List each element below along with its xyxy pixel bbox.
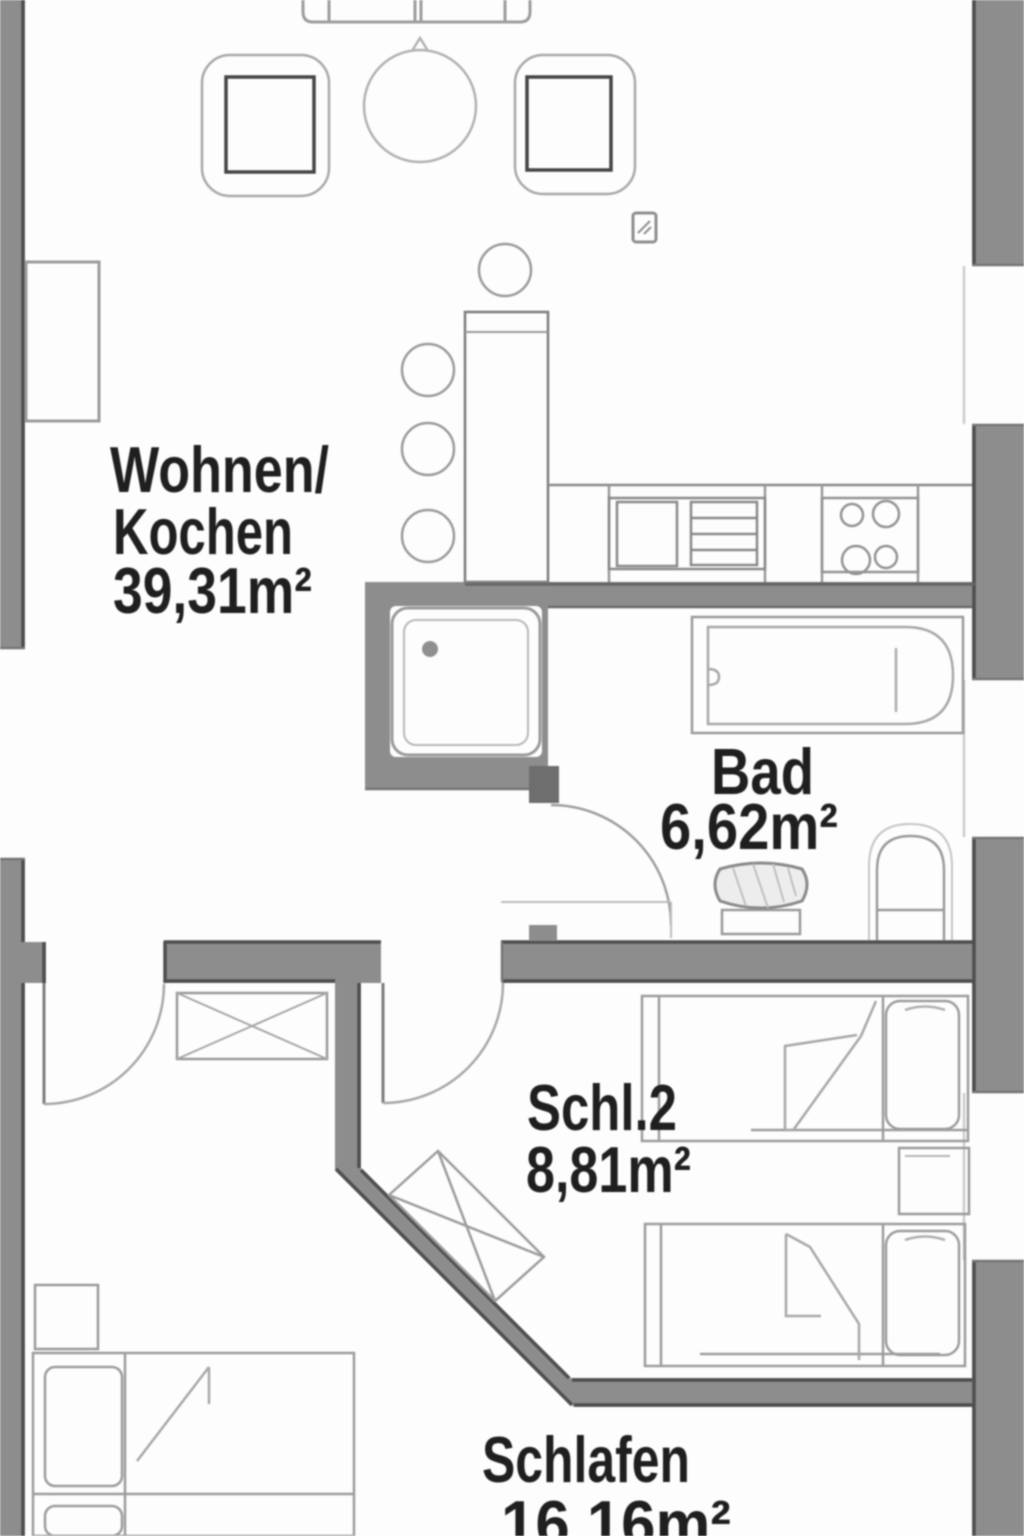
svg-text:Schlafen: Schlafen bbox=[482, 1423, 690, 1496]
svg-text:8,81m²: 8,81m² bbox=[526, 1133, 691, 1206]
svg-text:39,31m²: 39,31m² bbox=[113, 554, 312, 627]
svg-text:16,16m²: 16,16m² bbox=[501, 1487, 731, 1536]
svg-text:6,62m²: 6,62m² bbox=[660, 790, 838, 863]
